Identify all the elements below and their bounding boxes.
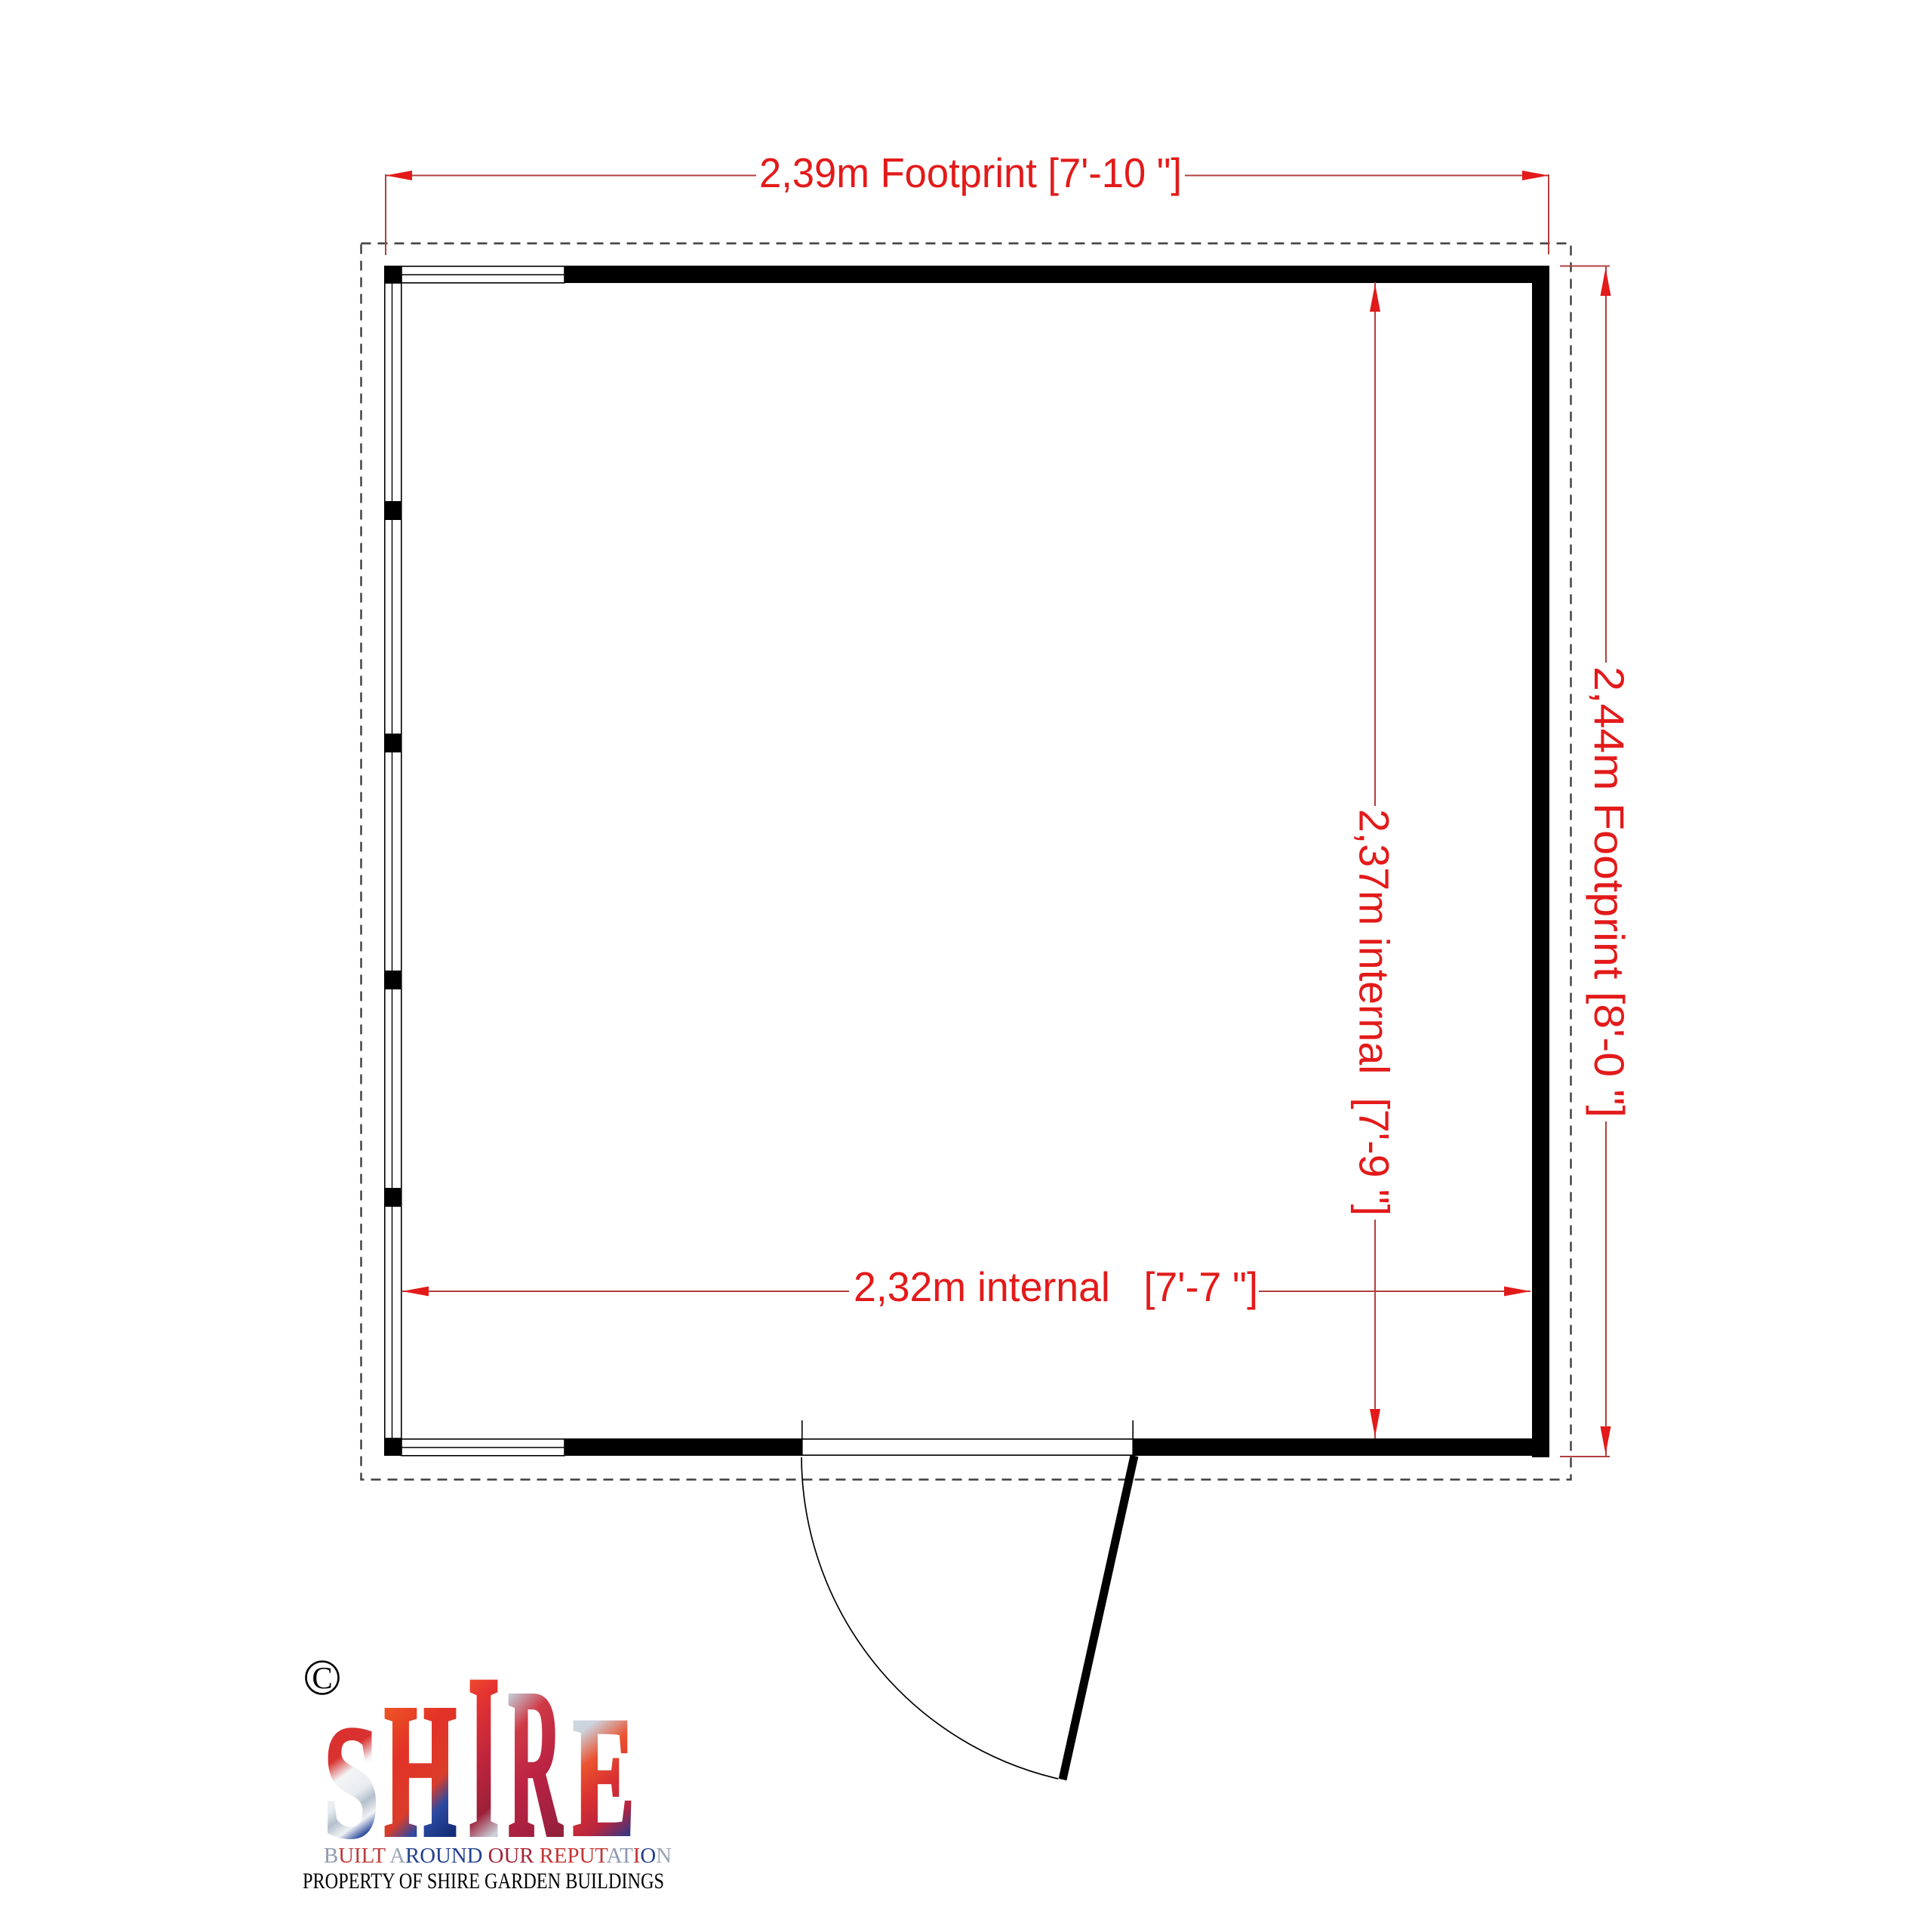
svg-text:2,32m internal [7'-7 "]: 2,32m internal [7'-7 "] [854, 1263, 1258, 1310]
svg-text:2,39m Footprint [7'-10 "]: 2,39m Footprint [7'-10 "] [759, 149, 1182, 196]
svg-text:C: C [312, 1660, 332, 1695]
svg-text:2,44m Footprint [8'-0 "]: 2,44m Footprint [8'-0 "] [1586, 666, 1633, 1118]
svg-text:PROPERTY OF SHIRE GARDEN BUILD: PROPERTY OF SHIRE GARDEN BUILDINGS [303, 1869, 664, 1894]
svg-text:BUILT AROUND OUR REPUTATION: BUILT AROUND OUR REPUTATION [324, 1844, 672, 1868]
svg-text:E: E [573, 1682, 635, 1871]
svg-text:2,37m internal [7'-9 "]: 2,37m internal [7'-9 "] [1351, 809, 1398, 1216]
